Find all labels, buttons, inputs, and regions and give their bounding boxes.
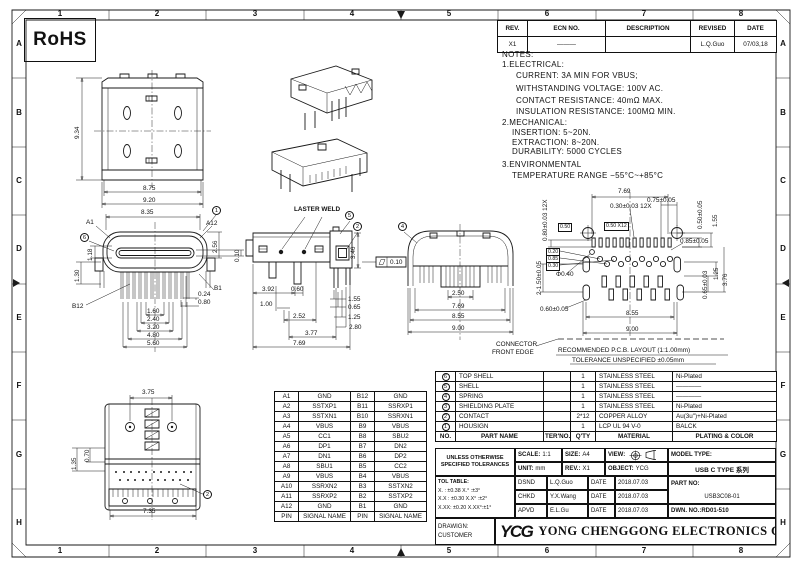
dim-label: 3.46: [350, 247, 357, 259]
dim-label: 3.77: [305, 330, 317, 337]
signal-name: SSRXP2: [299, 492, 351, 502]
pin-id: B2: [351, 492, 375, 502]
pin-row: A10 SSRXN2 B3 SSTXN2: [275, 482, 427, 492]
frame-row-label: B: [777, 108, 789, 117]
dim-label: 7.69: [452, 303, 464, 310]
frame-row-label: A: [777, 39, 789, 48]
customer-label: CUSTOMER: [438, 532, 472, 541]
dwn-no-value: DWN. NO.:RD01-510: [671, 508, 729, 514]
object-label: OBJECT:: [608, 466, 634, 472]
part-callout: 6: [80, 233, 89, 242]
pin-id: B8: [351, 432, 375, 442]
view-label: VIEW:: [608, 452, 625, 458]
bom-header: TER'NO.: [544, 432, 571, 442]
frame-col-label: 6: [541, 9, 553, 18]
pin-row: A9 VBUS B4 VBUS: [275, 472, 427, 482]
size-value: A4: [582, 452, 589, 458]
revised-value: L.Q.Guo: [691, 37, 735, 53]
view-cell: VIEW:: [605, 448, 668, 462]
dim-label: 0.10: [234, 250, 241, 262]
notes-mechanical-title: 2.MECHANICAL:: [502, 118, 567, 127]
bom-plating: ————: [673, 392, 777, 402]
bom-plating: Au(3u")+Ni-Plated: [673, 412, 777, 422]
dim-label: 3.92: [262, 286, 274, 293]
rev-header: REV.: [498, 21, 528, 37]
part-callout: 4: [398, 222, 407, 231]
bom-material: STAINLESS STEEL: [596, 382, 673, 392]
drawing-label: DRAWIGN:: [438, 523, 468, 532]
bom-no: 3: [436, 402, 456, 412]
dim-label: 7.69: [618, 188, 630, 195]
bom-header: PART NAME: [456, 432, 544, 442]
date-label-cell: DATE: [588, 476, 615, 490]
pin-id: A8: [275, 462, 299, 472]
bom-row: 4 SPRING 1 STAINLESS STEEL ————: [436, 392, 777, 402]
pin-id: A10: [275, 482, 299, 492]
notes-line: INSULATION RESISTANCE: 100MΩ MIN.: [516, 107, 676, 116]
pin-header: PIN: [275, 512, 299, 522]
dim-label: 0.30: [546, 262, 560, 271]
frame-row-label: G: [13, 450, 25, 459]
bom-part-name: CONTACT: [456, 412, 544, 422]
bom-material: STAINLESS STEEL: [596, 372, 673, 382]
frame-col-label: 8: [735, 546, 747, 555]
date-value-cell: 2018.07.03: [615, 490, 668, 504]
dim-label: 0.80: [198, 299, 210, 306]
date-header: DATE: [735, 21, 777, 37]
bom-no: 6: [436, 372, 456, 382]
date-value: 2018.07.03: [618, 508, 648, 514]
pin-b12-label: B12: [72, 303, 83, 310]
dsnd-label-cell: DSND: [515, 476, 547, 490]
notes-line: DURABILITY: 5000 CYCLES: [512, 147, 622, 156]
drawing-customer-cell: DRAWIGN: CUSTOMER: [435, 518, 495, 545]
bom-row: 5 SHELL 1 STAINLESS STEEL ————: [436, 382, 777, 392]
dim-label: 9.00: [626, 326, 638, 333]
frame-row-label: H: [13, 518, 25, 527]
bom-row: 6 TOP SHELL 1 STAINLESS STEEL Ni-Plated: [436, 372, 777, 382]
bom-qty: 1: [571, 382, 596, 392]
notes-line: INSERTION: 5~20N.: [512, 128, 591, 137]
date-label-cell: DATE: [588, 504, 615, 518]
pin-id: B6: [351, 452, 375, 462]
dim-label: 0.60: [291, 286, 303, 293]
pin-id: A4: [275, 422, 299, 432]
signal-name: GND: [375, 392, 427, 402]
dim-label: 1.25: [713, 268, 720, 280]
ecn-header: ECN NO.: [528, 21, 606, 37]
dim-label: 2.40: [147, 316, 159, 323]
dim-label: 0.50±0.05: [697, 201, 704, 229]
signal-header: SIGNAL NAME: [299, 512, 351, 522]
dim-label: 0.24: [198, 291, 210, 298]
unit-value: mm: [535, 466, 545, 472]
pin-row: A6 DP1 B7 DN2: [275, 442, 427, 452]
bom-plating: BALCK: [673, 422, 777, 432]
dim-label: 1.00: [260, 301, 272, 308]
bom-header: NO.: [436, 432, 456, 442]
chkd-value-cell: Y.X.Wang: [547, 490, 588, 504]
notes-line: TEMPERATURE RANGE −55°C~+85°C: [512, 171, 663, 180]
tolerance-note-cell: UNLESS OTHERWISE SPECIFIED TOLERANCES: [435, 448, 515, 476]
signal-name: GND: [299, 392, 351, 402]
dim-label: 8.75: [143, 185, 155, 192]
bom-row: 3 SHIELDING PLATE 1 STAINLESS STEEL Ni-P…: [436, 402, 777, 412]
dim-label: 7.69: [293, 340, 305, 347]
exploded-view: [272, 66, 372, 192]
bom-plating: Ni-Plated: [673, 372, 777, 382]
pin-a1-label: A1: [86, 219, 94, 226]
chkd-value: Y.X.Wang: [550, 494, 576, 500]
signal-name: VBUS: [299, 472, 351, 482]
frame-col-label: 2: [151, 9, 163, 18]
rev-cell: REV.: X1: [562, 462, 605, 476]
bom-part-name: SHELL: [456, 382, 544, 392]
object-value: YCG: [636, 466, 649, 472]
signal-name: CC2: [375, 462, 427, 472]
frame-col-label: 4: [346, 546, 358, 555]
signal-name: VBUS: [375, 422, 427, 432]
frame-col-label: 3: [249, 9, 261, 18]
dim-label: 0.65: [348, 304, 360, 311]
bom-ter-no: [544, 382, 571, 392]
dim-label: 3.75: [142, 389, 154, 396]
bom-qty: 2*12: [571, 412, 596, 422]
scale-label: SCALE:: [518, 452, 540, 458]
frame-col-label: 5: [443, 9, 455, 18]
model-type-value: USB C TYPE 系列: [695, 464, 749, 474]
pin-row: A5 CC1 B8 SBU2: [275, 432, 427, 442]
model-type-value-cell: USB C TYPE 系列: [668, 462, 776, 476]
bom-row: 2 CONTACT 2*12 COPPER ALLOY Au(3u")+Ni-P…: [436, 412, 777, 422]
signal-name: SSTXP2: [375, 492, 427, 502]
signal-name: DP1: [299, 442, 351, 452]
frame-col-label: 7: [638, 546, 650, 555]
tolerance-table-cell: TOL TABLE: X. : ±0.38 X.° :±3°X.X : ±0.3…: [435, 476, 515, 518]
bom-material: COPPER ALLOY: [596, 412, 673, 422]
date-label: DATE: [591, 508, 607, 514]
frame-col-label: 1: [54, 9, 66, 18]
bom-no: 1: [436, 422, 456, 432]
bom-row: 1 HOUSIGN 1 LCP UL 94 V-0 BALCK: [436, 422, 777, 432]
dim-label: Φ0.40: [556, 271, 574, 278]
bom-plating: ————: [673, 382, 777, 392]
dim-label: 2.80: [349, 324, 361, 331]
signal-name: SSTXN1: [299, 412, 351, 422]
bom-part-name: SHIELDING PLATE: [456, 402, 544, 412]
signal-name: SBU2: [375, 432, 427, 442]
side-view: [246, 217, 406, 350]
pin-header: PIN: [351, 512, 375, 522]
signal-name: VBUS: [299, 422, 351, 432]
dim-label: 0.70: [84, 450, 91, 462]
bom-no: 4: [436, 392, 456, 402]
bom-material: STAINLESS STEEL: [596, 402, 673, 412]
signal-name: SBU1: [299, 462, 351, 472]
signal-name: SSTXP1: [299, 402, 351, 412]
part-callout: 5: [345, 211, 354, 220]
bom-qty: 1: [571, 402, 596, 412]
notes-line: CONTACT RESISTANCE: 40mΩ MAX.: [516, 96, 663, 105]
notes-title: NOTES:: [502, 50, 534, 59]
pin-row: A2 SSTXP1 B11 SSRXP1: [275, 402, 427, 412]
bom-ter-no: [544, 402, 571, 412]
date-label: DATE: [591, 494, 607, 500]
size-label: SIZE:: [565, 452, 580, 458]
notes-electrical-title: 1.ELECTRICAL:: [502, 60, 564, 69]
bom-no: 5: [436, 382, 456, 392]
unit-cell: UNIT: mm: [515, 462, 562, 476]
pin-id: B11: [351, 402, 375, 412]
frame-col-label: 5: [443, 546, 455, 555]
ecn-value: ———: [528, 37, 606, 53]
company-cell: YCG YONG CHENGGONG ELECTRONICS CO. , LTD…: [495, 518, 776, 545]
object-cell: OBJECT: YCG: [605, 462, 668, 476]
pin-id: A12: [275, 502, 299, 512]
pin-id: A6: [275, 442, 299, 452]
notes-environmental-title: 3.ENVIRONMENTAL: [502, 160, 581, 169]
date-value-cell: 2018.07.03: [615, 476, 668, 490]
part-callout: 2: [203, 490, 212, 499]
dim-label: 4.80: [147, 332, 159, 339]
frame-col-label: 7: [638, 9, 650, 18]
dim-label: 2-1.50±0.05: [536, 261, 543, 295]
frame-row-label: D: [777, 244, 789, 253]
bom-ter-no: [544, 392, 571, 402]
pin-id: B9: [351, 422, 375, 432]
rear-view: [404, 224, 513, 340]
frame-row-label: E: [777, 313, 789, 322]
dsnd-value: L.Q.Guo: [550, 480, 573, 486]
frame-col-label: 3: [249, 546, 261, 555]
signal-name: GND: [375, 502, 427, 512]
pin-id: B12: [351, 392, 375, 402]
tolerance-note-line: UNLESS OTHERWISE: [446, 455, 503, 462]
pin-id: A11: [275, 492, 299, 502]
front-view: [76, 214, 244, 352]
notes-line: EXTRACTION: 8~20N.: [512, 138, 599, 147]
signal-name: GND: [299, 502, 351, 512]
bom-part-name: SPRING: [456, 392, 544, 402]
pin-id: A9: [275, 472, 299, 482]
dim-label: 1.30: [74, 270, 81, 282]
signal-name: SSTXN2: [375, 482, 427, 492]
dim-label: 1.55: [712, 215, 719, 227]
dim-label: 1.55: [348, 296, 360, 303]
engineering-drawing-sheet: 1 2 3 4 5 6 7 8 1 2 3 4 5 6 7 8 A B C D …: [0, 0, 800, 565]
bom-table: 6 TOP SHELL 1 STAINLESS STEEL Ni-Plated …: [435, 371, 777, 442]
bom-part-name: TOP SHELL: [456, 372, 544, 382]
frame-row-label: E: [13, 313, 25, 322]
signal-name: VBUS: [375, 472, 427, 482]
dim-label: 8.55: [626, 310, 638, 317]
tol-table-row: X.XX: ±0.20 X.XX°:±1°: [438, 504, 491, 513]
dim-label: 3.20: [147, 324, 159, 331]
bom-ter-no: [544, 422, 571, 432]
signal-name: SSRXN1: [375, 412, 427, 422]
signal-header: SIGNAL NAME: [375, 512, 427, 522]
dim-label: 1.18: [87, 249, 94, 261]
part-no-cell: PART NO: USB3C08-01: [668, 476, 776, 504]
bom-plating: Ni-Plated: [673, 402, 777, 412]
description-header: DESCRIPTION: [606, 21, 691, 37]
bom-header-row: NO. PART NAME TER'NO. Q'TY MATERIAL PLAT…: [436, 432, 777, 442]
pin-assignment-table: A1 GND B12 GND A2 SSTXP1 B11 SSRXP1 A3 S…: [274, 391, 427, 522]
scale-value: 1:1: [542, 452, 550, 458]
dim-label: 0.30±0.03 12X: [610, 203, 652, 210]
dim-label: 0.65±0.03: [702, 271, 709, 299]
pin-row: A8 SBU1 B5 CC2: [275, 462, 427, 472]
frame-row-label: H: [777, 518, 789, 527]
bom-ter-no: [544, 372, 571, 382]
date-value: 2018.07.03: [618, 480, 648, 486]
model-type-label: MODEL TYPE:: [671, 452, 712, 458]
dim-label: 1.35: [71, 458, 78, 470]
signal-name: SSRXP1: [375, 402, 427, 412]
notes-line: CURRENT: 3A MIN FOR VBUS;: [516, 71, 638, 80]
date-value: 2018.07.03: [618, 494, 648, 500]
rohs-label: RoHS: [33, 29, 87, 51]
frame-col-label: 8: [735, 9, 747, 18]
dsnd-value-cell: L.Q.Guo: [547, 476, 588, 490]
flatness-tolerance-value: 0.10: [390, 259, 402, 266]
apvd-label-cell: APVD: [515, 504, 547, 518]
tol-table-row: X. : ±0.38 X.° :±3°: [438, 487, 491, 496]
frame-row-label: C: [13, 176, 25, 185]
dim-label: 1.25: [348, 314, 360, 321]
pcb-layout-note: RECOMMENDED P.C.B. LAYOUT (1:1.00mm): [558, 347, 690, 354]
frame-col-label: 6: [541, 546, 553, 555]
company-logo: YCG: [500, 522, 532, 542]
pin-id: B1: [351, 502, 375, 512]
signal-name: DN1: [299, 452, 351, 462]
connector-front-edge-label: CONNECTOR: [496, 341, 537, 348]
bom-no: 2: [436, 412, 456, 422]
frame-row-label: D: [13, 244, 25, 253]
bom-header: MATERIAL: [596, 432, 673, 442]
revised-header: REVISED: [691, 21, 735, 37]
date-value-cell: 2018.07.03: [615, 504, 668, 518]
signal-name: SSRXN2: [299, 482, 351, 492]
dim-label: 8.55: [452, 313, 464, 320]
dim-label: 3.76: [722, 274, 729, 286]
projection-cone-icon: [644, 450, 657, 460]
bom-part-name: HOUSIGN: [456, 422, 544, 432]
company-name: YONG CHENGGONG ELECTRONICS CO. , LTD.: [538, 524, 776, 539]
dim-label: 5.60: [147, 340, 159, 347]
dim-label: 0.85±0.05: [680, 238, 708, 245]
description-value: [606, 37, 691, 53]
apvd-label: APVD: [518, 508, 534, 514]
pin-a12-label: A12: [206, 220, 217, 227]
scale-cell: SCALE: 1:1: [515, 448, 562, 462]
unit-label: UNIT:: [518, 466, 533, 472]
part-callout: 2: [353, 222, 362, 231]
tol-table-title: TOL TABLE:: [438, 478, 469, 487]
dim-label: 0.80±0.03 12X: [542, 199, 549, 241]
pin-id: B5: [351, 462, 375, 472]
frame-col-label: 1: [54, 546, 66, 555]
frame-col-label: 4: [346, 9, 358, 18]
signal-name: DN2: [375, 442, 427, 452]
rev-label: REV.:: [565, 466, 580, 472]
dim-label: 0.50 X12: [604, 222, 629, 231]
frame-row-label: F: [777, 381, 789, 390]
dim-label: 2.56: [212, 241, 219, 253]
frame-row-label: G: [777, 450, 789, 459]
dsnd-label: DSND: [518, 480, 535, 486]
pin-table-header-row: PIN SIGNAL NAME PIN SIGNAL NAME: [275, 512, 427, 522]
apvd-value-cell: E.L.Gu: [547, 504, 588, 518]
pin-b1-label: B1: [214, 285, 222, 292]
dim-label: 9.34: [74, 127, 81, 139]
signal-name: CC1: [299, 432, 351, 442]
pin-id: A7: [275, 452, 299, 462]
dwn-no-cell: DWN. NO.:RD01-510: [668, 504, 776, 518]
pin-row: A7 DN1 B6 DP2: [275, 452, 427, 462]
dim-label: 8.35: [141, 209, 153, 216]
part-callout: 1: [212, 206, 221, 215]
apvd-value: E.L.Gu: [550, 508, 569, 514]
date-value: 07/03,18: [735, 37, 777, 53]
bom-qty: 1: [571, 392, 596, 402]
bom-qty: 1: [571, 422, 596, 432]
connector-front-edge-label: FRONT EDGE: [492, 349, 534, 356]
chkd-label: CHKD: [518, 494, 535, 500]
dim-label: 1.60: [147, 308, 159, 315]
bottom-view: [72, 395, 205, 520]
tolerance-note-line: SPECIFIED TOLERANCES: [441, 462, 509, 469]
bom-qty: 1: [571, 372, 596, 382]
signal-name: DP2: [375, 452, 427, 462]
dim-label: 2.50: [452, 290, 464, 297]
pin-row: A11 SSRXP2 B2 SSTXP2: [275, 492, 427, 502]
dim-label: 9.00: [452, 325, 464, 332]
bom-header: Q'TY: [571, 432, 596, 442]
frame-row-label: F: [13, 381, 25, 390]
third-angle-projection-icon: [629, 450, 642, 461]
frame-row-label: C: [777, 176, 789, 185]
date-label: DATE: [591, 480, 607, 486]
pin-row: A1 GND B12 GND: [275, 392, 427, 402]
dim-label: 0.50: [558, 223, 572, 232]
revision-table: REV. ECN NO. DESCRIPTION REVISED DATE X1…: [497, 20, 777, 53]
pin-id: A2: [275, 402, 299, 412]
pin-id: A1: [275, 392, 299, 402]
bom-header: PLATING & COLOR: [673, 432, 777, 442]
chkd-label-cell: CHKD: [515, 490, 547, 504]
pin-id: B4: [351, 472, 375, 482]
pin-row: A4 VBUS B9 VBUS: [275, 422, 427, 432]
dim-label: 7.35: [143, 508, 155, 515]
pin-id: A3: [275, 412, 299, 422]
bom-ter-no: [544, 412, 571, 422]
pcb-tolerance-note: TOLERANCE UNSPECIFIED ±0.05mm: [572, 357, 684, 364]
rev-value: X1: [582, 466, 589, 472]
pin-id: A5: [275, 432, 299, 442]
laser-weld-label: LASTER WELD: [294, 206, 340, 213]
bom-material: STAINLESS STEEL: [596, 392, 673, 402]
pin-row: A3 SSTXN1 B10 SSRXN1: [275, 412, 427, 422]
pin-id: B10: [351, 412, 375, 422]
part-no-value: USB3C08-01: [704, 494, 739, 500]
pin-id: B3: [351, 482, 375, 492]
date-label-cell: DATE: [588, 490, 615, 504]
frame-col-label: 2: [151, 546, 163, 555]
pin-id: B7: [351, 442, 375, 452]
tol-table-row: X.X : ±0.30 X.X° :±2°: [438, 495, 491, 504]
frame-row-label: B: [13, 108, 25, 117]
